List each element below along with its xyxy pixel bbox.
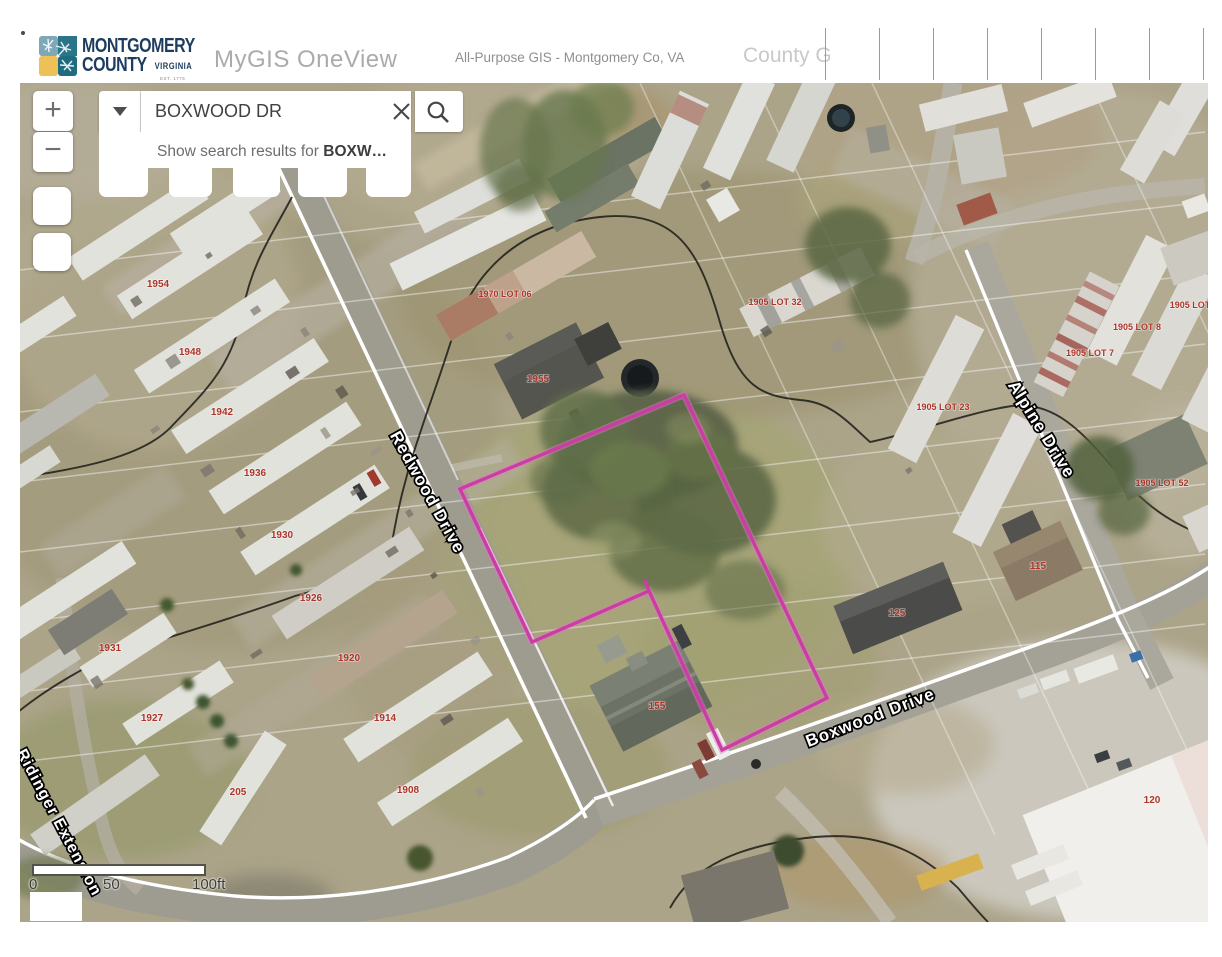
svg-text:1948: 1948 bbox=[179, 347, 202, 358]
svg-text:205: 205 bbox=[230, 787, 247, 798]
svg-text:1920: 1920 bbox=[338, 653, 361, 664]
svg-text:1931: 1931 bbox=[99, 643, 122, 654]
svg-text:1942: 1942 bbox=[211, 407, 234, 418]
svg-text:1926: 1926 bbox=[300, 593, 323, 604]
svg-text:155: 155 bbox=[649, 701, 666, 712]
svg-text:115: 115 bbox=[1030, 561, 1047, 572]
svg-text:1905 LOT 52: 1905 LOT 52 bbox=[1135, 478, 1188, 488]
svg-text:1930: 1930 bbox=[271, 530, 294, 541]
svg-text:1905 LOT 32: 1905 LOT 32 bbox=[748, 297, 801, 307]
svg-text:1905 LOT 23: 1905 LOT 23 bbox=[916, 402, 969, 412]
svg-text:1954: 1954 bbox=[147, 279, 170, 290]
svg-text:120: 120 bbox=[1144, 795, 1161, 806]
svg-text:1936: 1936 bbox=[244, 468, 267, 479]
svg-text:1905 LOT 7: 1905 LOT 7 bbox=[1066, 348, 1114, 358]
svg-text:125: 125 bbox=[889, 608, 906, 619]
svg-text:1955: 1955 bbox=[527, 374, 550, 385]
svg-text:1927: 1927 bbox=[141, 713, 164, 724]
svg-text:1905 LOT: 1905 LOT bbox=[1170, 300, 1208, 310]
svg-text:1908: 1908 bbox=[397, 785, 420, 796]
svg-text:1905 LOT 8: 1905 LOT 8 bbox=[1113, 322, 1161, 332]
svg-text:1914: 1914 bbox=[374, 713, 397, 724]
svg-text:1970 LOT 06: 1970 LOT 06 bbox=[478, 289, 531, 299]
